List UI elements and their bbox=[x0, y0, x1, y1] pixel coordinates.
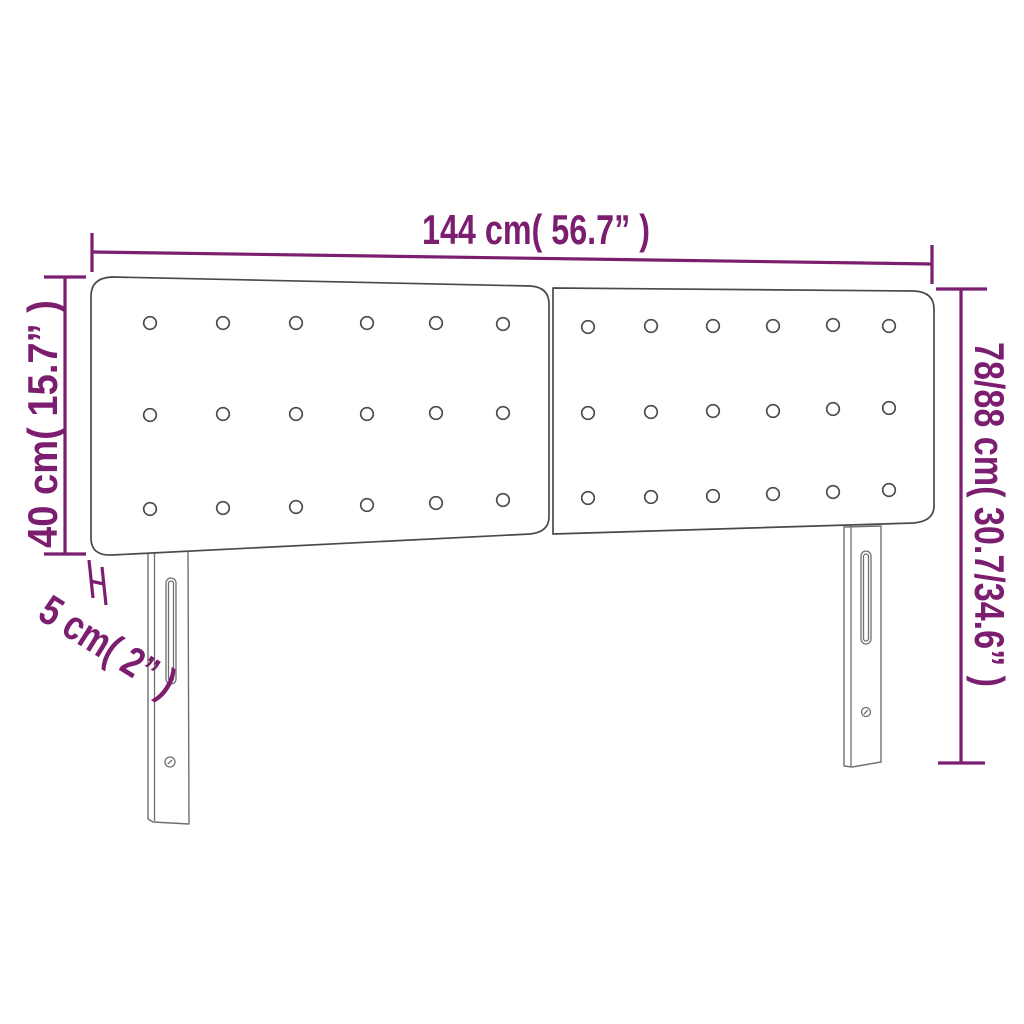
tufting-button bbox=[767, 488, 780, 501]
tufting-button bbox=[827, 486, 840, 499]
right-leg-body bbox=[844, 526, 881, 767]
tufting-button bbox=[217, 502, 230, 515]
tufting-button bbox=[767, 405, 780, 418]
panel-height-dimension-label: 40 cm( 15.7” ) bbox=[19, 300, 66, 548]
tufting-button bbox=[497, 407, 510, 420]
headboard-right-panel bbox=[553, 288, 934, 534]
tufting-button bbox=[582, 492, 595, 505]
total-height-dimension-label: 78/88 cm( 30.7/34.6” ) bbox=[966, 342, 1013, 687]
tufting-button bbox=[883, 402, 896, 415]
tufting-button bbox=[767, 320, 780, 333]
width-dimension-line bbox=[92, 252, 932, 264]
tufting-button bbox=[883, 484, 896, 497]
tufting-button bbox=[144, 317, 157, 330]
dimension-total-height: 78/88 cm( 30.7/34.6” ) bbox=[936, 289, 1013, 763]
tufting-button bbox=[361, 499, 374, 512]
diagram-canvas: 144 cm( 56.7” ) 40 cm( 15.7” ) 78/88 cm(… bbox=[0, 0, 1024, 1024]
tufting-button bbox=[361, 317, 374, 330]
headboard-dimension-diagram: 144 cm( 56.7” ) 40 cm( 15.7” ) 78/88 cm(… bbox=[0, 0, 1024, 1024]
tufting-button bbox=[645, 406, 658, 419]
dimension-width: 144 cm( 56.7” ) bbox=[92, 206, 932, 284]
depth-caliper-right bbox=[102, 567, 106, 605]
tufting-button bbox=[290, 408, 303, 421]
tufting-button bbox=[707, 405, 720, 418]
tufting-button bbox=[144, 409, 157, 422]
tufting-button bbox=[430, 407, 443, 420]
depth-caliper-left bbox=[89, 560, 93, 598]
dimension-panel-height: 40 cm( 15.7” ) bbox=[19, 277, 86, 554]
headboard-left-panel bbox=[91, 277, 549, 555]
width-dimension-label: 144 cm( 56.7” ) bbox=[422, 206, 650, 253]
tufting-button bbox=[707, 320, 720, 333]
tufting-button bbox=[827, 319, 840, 332]
tufting-button bbox=[707, 490, 720, 503]
tufting-button bbox=[217, 317, 230, 330]
tufting-button bbox=[430, 497, 443, 510]
tufting-button bbox=[497, 318, 510, 331]
tufting-button bbox=[290, 501, 303, 514]
tufting-button bbox=[217, 408, 230, 421]
tufting-button bbox=[883, 320, 896, 333]
tufting-button bbox=[361, 408, 374, 421]
tufting-button bbox=[290, 317, 303, 330]
tufting-button bbox=[582, 407, 595, 420]
tufting-button bbox=[497, 494, 510, 507]
right-leg bbox=[844, 526, 881, 767]
tufting-button bbox=[430, 317, 443, 330]
tufting-button bbox=[645, 491, 658, 504]
tufting-button bbox=[827, 403, 840, 416]
tufting-button bbox=[645, 320, 658, 333]
tufting-button bbox=[582, 321, 595, 334]
tufting-button bbox=[144, 503, 157, 516]
